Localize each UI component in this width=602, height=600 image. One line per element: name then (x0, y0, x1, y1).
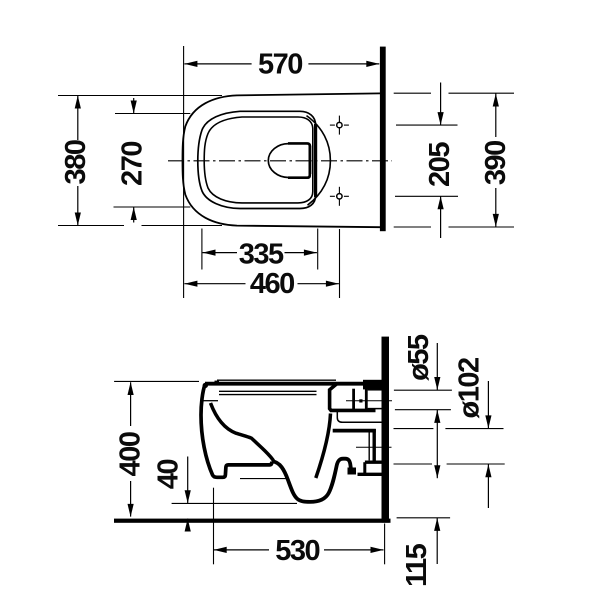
svg-text:40: 40 (153, 460, 185, 490)
svg-text:390: 390 (480, 141, 512, 185)
svg-text:570: 570 (258, 49, 302, 81)
svg-text:ø102: ø102 (454, 358, 486, 418)
svg-text:400: 400 (114, 432, 146, 476)
svg-text:460: 460 (250, 268, 294, 300)
svg-text:ø55: ø55 (403, 334, 435, 381)
svg-text:115: 115 (401, 543, 433, 587)
svg-text:270: 270 (117, 142, 149, 186)
svg-text:380: 380 (60, 140, 92, 184)
svg-text:335: 335 (239, 239, 284, 271)
svg-text:205: 205 (424, 142, 456, 187)
svg-text:530: 530 (275, 535, 319, 567)
